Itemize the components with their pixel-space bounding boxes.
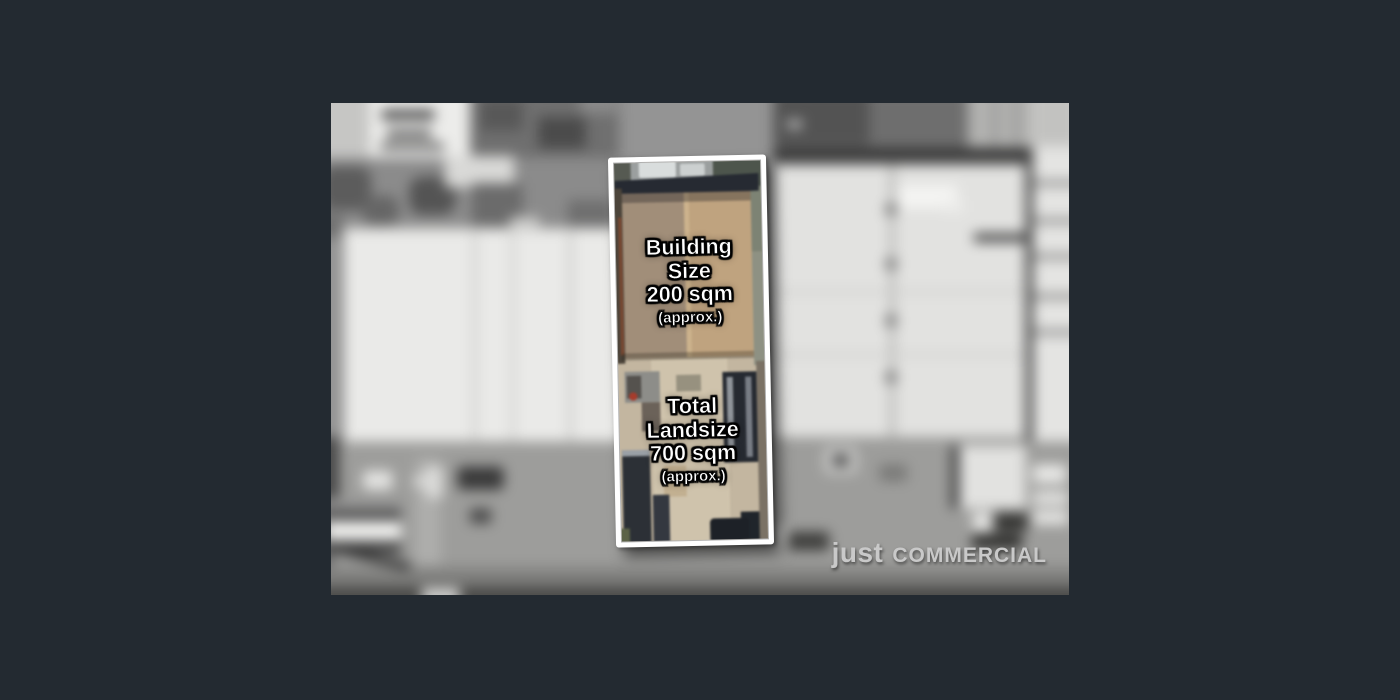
roof-nub — [886, 315, 897, 325]
light-patch — [580, 103, 617, 114]
building-label-line4: (approx.) — [617, 305, 763, 330]
trailer-dark — [994, 513, 1028, 531]
car — [363, 471, 392, 490]
warehouse-roof-left — [342, 227, 630, 464]
car — [772, 525, 787, 548]
land-label-line2: Landsize — [619, 417, 765, 444]
roof-nub — [886, 204, 897, 215]
van-dark — [710, 518, 750, 542]
roof-line — [1033, 255, 1069, 259]
edge-shadow — [331, 437, 340, 498]
building-size-label: Building Size 200 sqm (approx.) — [616, 234, 764, 330]
car — [680, 163, 705, 176]
roof-edge — [342, 227, 628, 231]
roof-stripe — [381, 143, 444, 149]
trailer — [653, 495, 671, 542]
building-label-line2: Size — [616, 258, 762, 285]
building-label-line3: 200 sqm — [617, 281, 763, 308]
roof-line — [1033, 330, 1069, 334]
light-block — [1033, 103, 1069, 147]
grass-patch — [620, 528, 631, 541]
dock-bar — [1033, 511, 1069, 525]
dark-patch — [538, 117, 585, 149]
page-background: just COMMERCIAL — [0, 0, 1400, 700]
smudge — [880, 465, 907, 482]
stripe — [1054, 103, 1058, 143]
roof-seam — [569, 227, 572, 464]
building-label-line1: Building — [616, 234, 762, 261]
dark-dash — [974, 234, 1031, 242]
gray-block — [869, 103, 969, 150]
watermark-just: just — [832, 537, 884, 569]
shed-slope — [331, 502, 401, 513]
shed-face — [331, 520, 401, 541]
light-blob — [422, 588, 460, 595]
roof-seam — [511, 227, 514, 464]
dock-bar — [1033, 465, 1067, 484]
property-highlight-card: Building Size 200 sqm (approx.) Total La… — [608, 154, 774, 547]
light-dot — [787, 120, 802, 128]
roof-nub — [886, 372, 897, 383]
aerial-photo: just COMMERCIAL — [331, 103, 1069, 595]
car-dark — [470, 509, 491, 524]
car-window — [832, 454, 849, 467]
roof-line — [1033, 219, 1069, 223]
small-building — [958, 446, 1025, 509]
car-dark — [787, 532, 829, 551]
land-label-line4: (approx.) — [620, 464, 766, 489]
roof-line — [774, 290, 1029, 293]
roof-seam — [473, 227, 476, 464]
shed-ridge — [331, 513, 401, 520]
land-label-line3: 700 sqm — [620, 440, 766, 467]
roof-nub — [886, 259, 897, 270]
stripe — [1066, 103, 1069, 143]
dark-patch — [481, 103, 523, 131]
watermark-commercial: COMMERCIAL — [892, 544, 1047, 568]
roof-stripe — [387, 130, 431, 138]
total-landsize-label: Total Landsize 700 sqm (approx.) — [619, 393, 767, 489]
roof-stripe — [382, 110, 435, 120]
stripe — [1041, 103, 1045, 143]
roof-line — [1033, 181, 1069, 185]
van — [426, 467, 443, 499]
white-patch — [943, 200, 964, 213]
building-shadow — [951, 446, 959, 509]
land-label-line1: Total — [619, 393, 765, 420]
trailer-light — [973, 513, 992, 532]
stripe — [993, 103, 997, 145]
dock-bar — [1033, 492, 1069, 505]
crate — [676, 374, 701, 391]
car — [639, 161, 676, 178]
stripe — [1014, 103, 1018, 145]
roof-line — [774, 353, 1029, 356]
tree-blob — [363, 196, 399, 225]
property-photo: Building Size 200 sqm (approx.) Total La… — [614, 161, 768, 542]
roof-line — [1033, 294, 1069, 298]
car-dark — [457, 467, 503, 490]
watermark: just COMMERCIAL — [832, 537, 1047, 569]
